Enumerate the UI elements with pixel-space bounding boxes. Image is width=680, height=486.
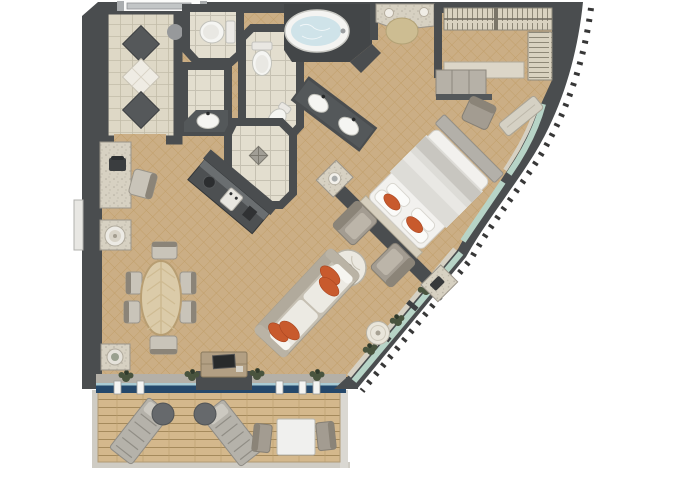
dining-chair-bottom: [150, 336, 177, 354]
dining-chair-right-1: [180, 272, 196, 294]
balcony-side-table-2: [194, 403, 216, 425]
oval-dining-table: [141, 261, 181, 335]
left-wall-door-notch: [74, 200, 83, 250]
sconce-icon: [385, 9, 394, 18]
granite-desk: [100, 142, 131, 208]
outdoor-chair-right: [316, 421, 337, 451]
bedroom-desk-top: [436, 94, 492, 100]
hanging-rack-side: [528, 32, 552, 80]
balcony: [92, 390, 350, 468]
closet-wall: [434, 4, 442, 78]
dining-chair-left-2: [124, 301, 140, 323]
dining-chair-right-2: [180, 301, 196, 323]
telephone: [109, 156, 126, 171]
bathtub: [285, 10, 349, 52]
door-frame-4: [299, 381, 306, 394]
balcony-rail-left: [92, 390, 98, 468]
tv-console: [201, 352, 247, 377]
faucet-icon: [206, 112, 210, 116]
toilet-main: [252, 42, 272, 76]
tub-faucet-icon: [341, 29, 346, 34]
balcony-side-table-1: [152, 403, 174, 425]
dining-chair-left-1: [126, 272, 142, 294]
outdoor-table: [277, 419, 315, 455]
outdoor-chair-left: [252, 423, 273, 453]
foyer-column: [167, 24, 183, 40]
sconce-icon: [420, 8, 429, 17]
bedroom-desk-drawers: [436, 70, 486, 96]
side-table: [367, 322, 390, 345]
console-object: [236, 366, 243, 372]
door-frame-2: [137, 381, 144, 394]
door-frame-1: [114, 381, 121, 394]
rack-divider: [494, 8, 498, 30]
door-frame-3: [276, 381, 283, 394]
suite-floor-plan: [0, 0, 680, 486]
tv: [213, 354, 236, 369]
floor-plan-stage: [0, 0, 680, 486]
entry-door-leaf: [127, 3, 191, 9]
vanity-stool: [386, 18, 418, 44]
toilet-guest-wc: [200, 21, 235, 43]
dining-chair-top: [152, 242, 177, 259]
balcony-rail-right: [340, 390, 348, 468]
door-frame-5: [313, 381, 320, 394]
